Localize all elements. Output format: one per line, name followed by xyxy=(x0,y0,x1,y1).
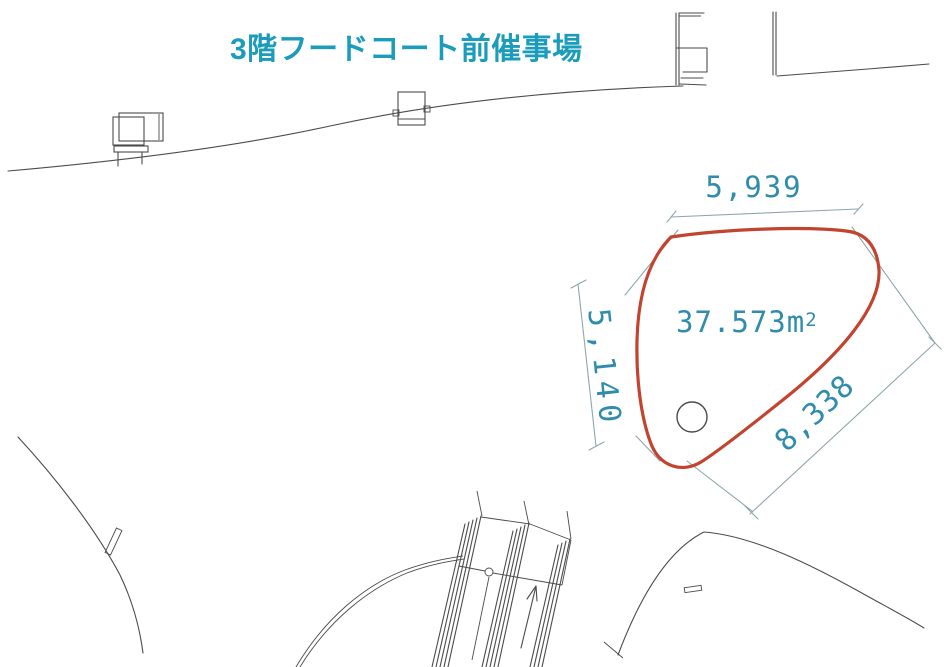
event-area-outline xyxy=(637,229,879,468)
column-circle xyxy=(677,402,707,432)
escalator xyxy=(432,491,623,667)
floor-plan-page: 3階フードコート前催事場 5,939 5,140 8,338 37.573m2 xyxy=(0,0,948,667)
void-edge-double-arc xyxy=(296,556,464,667)
direction-arrow-icon xyxy=(521,586,537,648)
signboard-symbol xyxy=(113,113,163,166)
right-wall-and-slope xyxy=(773,12,929,76)
dimension-lines xyxy=(571,204,941,519)
bottom-right-curve xyxy=(618,532,924,655)
area-label: 37.573m2 xyxy=(676,305,818,339)
page-title: 3階フードコート前催事場 xyxy=(230,24,580,68)
bottom-left-curve xyxy=(18,437,143,653)
dimension-top: 5,939 xyxy=(694,170,814,204)
upper-slope-wall xyxy=(8,86,683,171)
wall-section-symbol xyxy=(676,13,707,85)
door-panel-symbol xyxy=(393,92,430,125)
area-superscript: 2 xyxy=(805,309,817,331)
escalator-pivot-circle xyxy=(485,568,493,576)
area-value: 37.573m xyxy=(676,305,805,339)
